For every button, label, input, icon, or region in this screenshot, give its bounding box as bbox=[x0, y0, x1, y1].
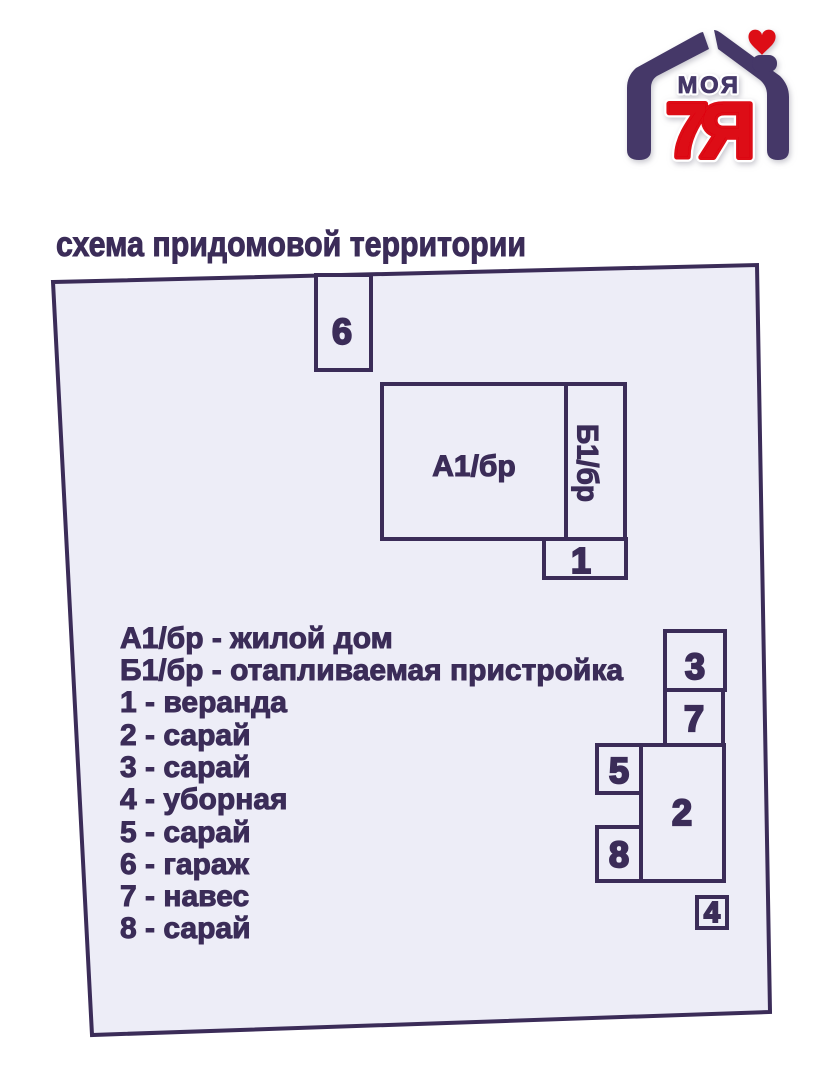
svg-text:Б1/бр - отапливаемая пристройк: Б1/бр - отапливаемая пристройка bbox=[120, 654, 623, 687]
svg-text:7 - навес: 7 - навес bbox=[120, 880, 249, 913]
svg-text:1 - веранда: 1 - веранда bbox=[120, 686, 287, 719]
svg-text:3: 3 bbox=[685, 646, 705, 687]
svg-text:1: 1 bbox=[571, 540, 591, 581]
svg-text:5: 5 bbox=[609, 750, 629, 791]
svg-text:4 - уборная: 4 - уборная bbox=[120, 783, 288, 816]
svg-text:8 - сарай: 8 - сарай bbox=[120, 912, 251, 945]
svg-text:А1/бр: А1/бр bbox=[432, 450, 516, 483]
svg-text:схема придомовой территории: схема придомовой территории bbox=[56, 225, 526, 264]
svg-text:7Я: 7Я bbox=[666, 88, 751, 174]
svg-text:6 - гараж: 6 - гараж bbox=[120, 848, 250, 881]
svg-text:2 - сарай: 2 - сарай bbox=[120, 719, 251, 752]
svg-text:4: 4 bbox=[704, 897, 720, 929]
svg-text:2: 2 bbox=[672, 792, 692, 833]
svg-text:8: 8 bbox=[609, 834, 629, 875]
svg-text:6: 6 bbox=[332, 311, 352, 352]
svg-text:А1/бр - жилой дом: А1/бр - жилой дом bbox=[120, 622, 393, 655]
svg-text:5 - сарай: 5 - сарай bbox=[120, 816, 251, 849]
svg-text:7: 7 bbox=[684, 698, 704, 739]
svg-text:Б1/бр: Б1/бр bbox=[571, 424, 604, 502]
svg-text:3 - сарай: 3 - сарай bbox=[120, 751, 251, 784]
